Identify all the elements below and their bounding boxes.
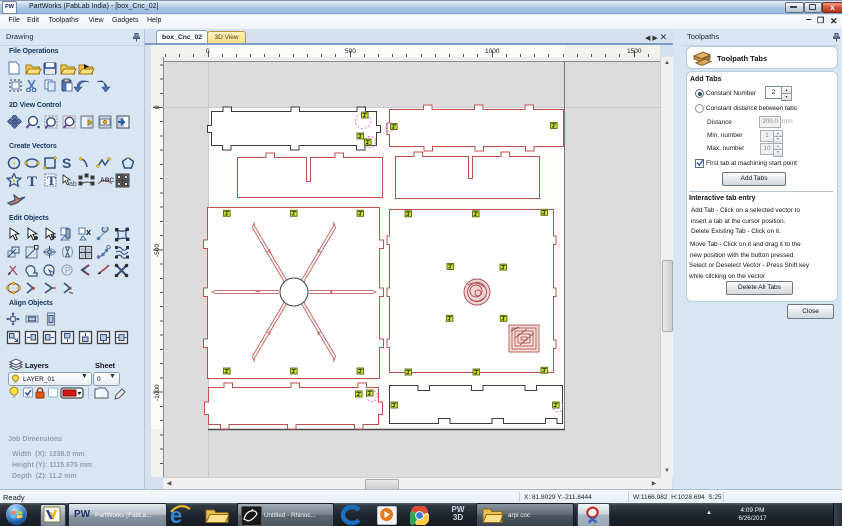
- svg-text:1000: 1000: [485, 48, 500, 55]
- svg-text:-1000: -1000: [154, 384, 161, 401]
- svg-text:0: 0: [154, 105, 161, 109]
- svg-text:x: x: [86, 227, 91, 237]
- svg-text:1500: 1500: [627, 48, 642, 55]
- svg-text:-500: -500: [154, 244, 161, 257]
- svg-text:500: 500: [345, 48, 356, 55]
- svg-text:T: T: [47, 173, 56, 188]
- svg-text:S: S: [62, 156, 71, 171]
- svg-text:P: P: [65, 266, 70, 275]
- svg-text:ABC: ABC: [100, 177, 114, 184]
- svg-text:ab: ab: [69, 181, 77, 188]
- svg-text:0: 0: [206, 48, 210, 55]
- svg-text:T: T: [27, 174, 37, 188]
